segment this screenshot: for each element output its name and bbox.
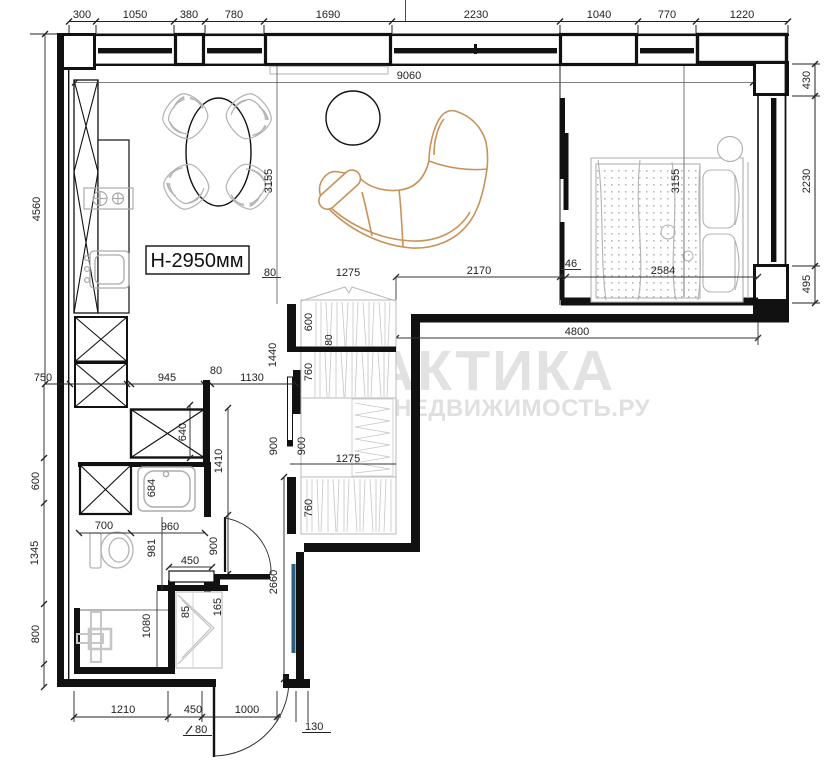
svg-text:1275: 1275	[336, 267, 360, 279]
svg-text:46: 46	[565, 258, 577, 270]
svg-text:1130: 1130	[240, 372, 264, 384]
svg-text:НЕДВИЖИМОСТЬ.РУ: НЕДВИЖИМОСТЬ.РУ	[394, 395, 651, 422]
svg-text:Н-2950мм: Н-2950мм	[150, 250, 243, 272]
svg-text:2660: 2660	[268, 570, 280, 594]
svg-text:760: 760	[303, 363, 315, 381]
svg-text:1440: 1440	[267, 343, 279, 367]
svg-text:1410: 1410	[213, 449, 225, 473]
svg-text:900: 900	[268, 437, 280, 455]
svg-text:750: 750	[34, 372, 52, 384]
svg-text:495: 495	[801, 275, 813, 293]
svg-text:600: 600	[303, 313, 315, 331]
svg-text:9060: 9060	[397, 70, 421, 82]
svg-text:4800: 4800	[565, 326, 589, 338]
svg-text:800: 800	[30, 625, 42, 643]
svg-text:2230: 2230	[464, 9, 488, 21]
svg-text:3155: 3155	[263, 169, 275, 193]
svg-text:80: 80	[324, 334, 335, 346]
svg-text:2584: 2584	[651, 265, 675, 277]
svg-text:1220: 1220	[730, 9, 754, 21]
svg-text:130: 130	[305, 721, 323, 733]
svg-text:380: 380	[180, 9, 198, 21]
svg-text:430: 430	[801, 71, 813, 89]
svg-text:760: 760	[303, 499, 315, 517]
svg-text:900: 900	[296, 437, 308, 455]
svg-text:780: 780	[225, 9, 243, 21]
svg-text:3155: 3155	[670, 169, 682, 193]
svg-text:700: 700	[95, 520, 113, 532]
svg-text:165: 165	[212, 598, 224, 616]
svg-text:2230: 2230	[801, 169, 813, 193]
svg-text:1040: 1040	[587, 9, 611, 21]
svg-text:450: 450	[181, 555, 199, 567]
svg-text:770: 770	[658, 9, 676, 21]
svg-text:1275: 1275	[336, 453, 360, 465]
svg-text:450: 450	[184, 704, 202, 716]
svg-text:85: 85	[180, 606, 192, 618]
svg-text:80: 80	[195, 724, 207, 736]
svg-text:684: 684	[146, 479, 158, 497]
svg-text:300: 300	[73, 9, 91, 21]
svg-text:640: 640	[177, 423, 189, 441]
svg-text:1345: 1345	[29, 541, 41, 565]
svg-text:900: 900	[208, 537, 220, 555]
svg-text:1690: 1690	[316, 9, 340, 21]
svg-text:600: 600	[30, 472, 42, 490]
svg-text:80: 80	[210, 365, 222, 377]
svg-text:981: 981	[146, 539, 158, 557]
svg-text:1050: 1050	[123, 9, 147, 21]
svg-text:2170: 2170	[467, 265, 491, 277]
svg-text:4560: 4560	[31, 197, 43, 221]
svg-text:945: 945	[158, 372, 176, 384]
svg-text:960: 960	[161, 521, 179, 533]
svg-text:1000: 1000	[235, 704, 259, 716]
svg-text:1080: 1080	[141, 614, 153, 638]
svg-text:1210: 1210	[111, 704, 135, 716]
